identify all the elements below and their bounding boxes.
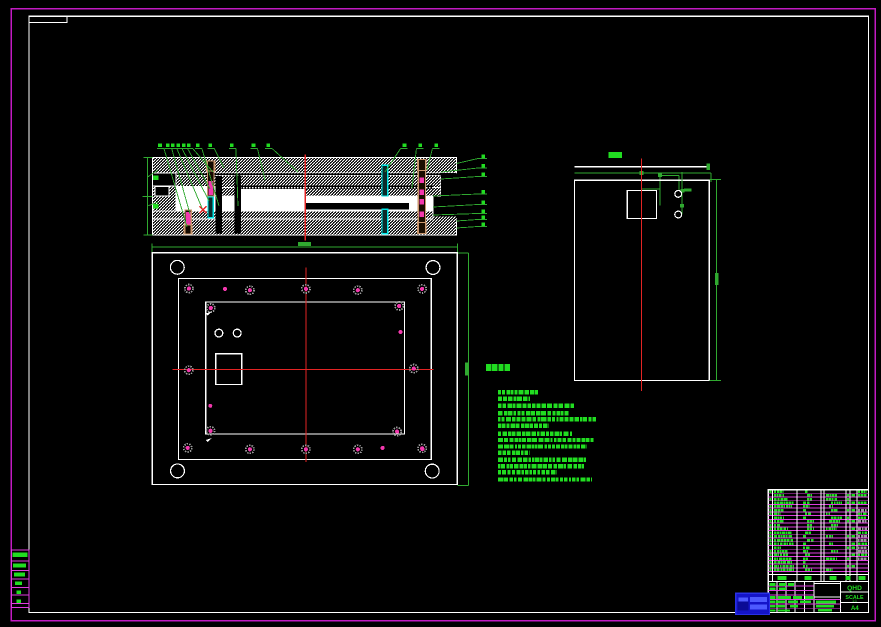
svg-text:A4: A4 [851,605,859,612]
svg-text:1:1: 1:1 [852,599,857,603]
svg-text:QHD: QHD [847,585,862,592]
